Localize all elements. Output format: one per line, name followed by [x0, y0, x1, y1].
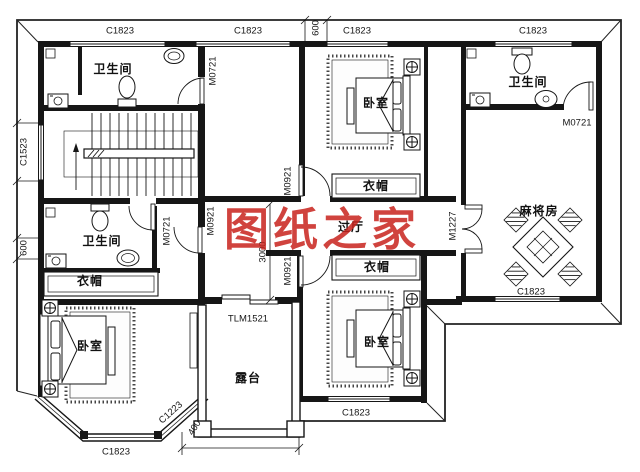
label-room-cloak-1: 衣帽 — [77, 275, 103, 287]
column-mark — [46, 49, 55, 58]
window-c1823-mahjong — [495, 297, 560, 302]
toilet-icon — [512, 48, 532, 74]
label-window-c1823-top-2: C1823 — [234, 26, 262, 36]
window-c1823-top-1 — [70, 42, 165, 47]
label-door-tlm1521: TLM1521 — [228, 314, 268, 324]
label-dim-600-top: 600 — [311, 20, 321, 36]
door-m0721-bath3 — [563, 82, 593, 110]
label-door-m0921-suite1: M0921 — [206, 206, 216, 235]
column-mark — [467, 49, 476, 58]
washing-machine-icon — [48, 94, 68, 108]
nightstand-lamp-icon — [404, 291, 420, 307]
washing-machine-icon — [46, 254, 66, 268]
label-door-m0721-bath3: M0721 — [562, 118, 591, 128]
label-room-bathroom-3: 卫生间 — [508, 76, 547, 88]
door-m0721-bath1 — [178, 78, 204, 104]
label-room-bedroom-2: 卧室 — [363, 97, 389, 109]
label-door-m0921-bedroom3: M0921 — [283, 256, 293, 285]
nightstand-lamp-icon — [404, 134, 420, 150]
door-m0721-bath2 — [129, 204, 155, 230]
label-room-terrace: 露台 — [235, 372, 261, 384]
label-room-bedroom-1: 卧室 — [77, 340, 103, 352]
label-door-m0721-bath1: M0721 — [208, 56, 218, 85]
label-window-c1823-mahjong: C1823 — [517, 287, 545, 297]
nightstand-lamp-icon — [404, 370, 420, 386]
mahjong-table-icon — [504, 208, 582, 286]
window-c1823-top-2 — [196, 42, 290, 47]
label-room-cloak-3: 衣帽 — [364, 261, 390, 273]
label-room-bedroom-3: 卧室 — [364, 336, 390, 348]
column-mark — [46, 208, 55, 217]
washing-machine-icon — [470, 93, 490, 107]
label-window-c1823-bay: C1823 — [102, 447, 130, 457]
sink-icon — [117, 250, 139, 266]
label-door-m1227: M1227 — [448, 211, 458, 240]
label-dim-600-left: 600 — [19, 240, 29, 256]
stairs-icon — [64, 113, 198, 196]
window-c1823-top-4 — [495, 42, 572, 47]
toilet-icon — [91, 204, 109, 231]
nightstand-lamp-icon — [42, 381, 58, 397]
window-c1823-bedroom3 — [328, 397, 390, 402]
door-m0921-bedroom3 — [299, 256, 330, 287]
label-door-m0921-bedroom2: M0921 — [283, 166, 293, 195]
window-c1523-left — [39, 125, 44, 180]
sink-icon — [164, 49, 184, 64]
label-room-mahjong: 麻将房 — [519, 205, 558, 217]
label-window-c1823-top-1: C1823 — [106, 26, 134, 36]
label-room-cloak-2: 衣帽 — [363, 180, 389, 192]
label-room-bathroom-1: 卫生间 — [93, 63, 132, 75]
chair-icon — [504, 262, 528, 286]
sink-icon — [535, 91, 557, 108]
label-room-bathroom-2: 卫生间 — [82, 235, 121, 247]
nightstand-lamp-icon — [42, 300, 58, 316]
floor-plan-canvas: C1823 C1823 C1823 C1823 600 C1523 600 M0… — [0, 0, 640, 472]
label-window-c1823-top-4: C1823 — [519, 26, 547, 36]
watermark: 图纸之家 — [224, 208, 420, 253]
door-m1227-mahjong — [462, 205, 482, 253]
label-door-m0721-bath2: M0721 — [162, 216, 172, 245]
window-c1823-top-3 — [327, 42, 388, 47]
label-window-c1823-bedroom3: C1823 — [342, 408, 370, 418]
nightstand-lamp-icon — [404, 59, 420, 75]
label-window-c1523: C1523 — [19, 138, 29, 166]
chair-icon — [558, 208, 582, 232]
door-m0921-suite1 — [174, 227, 202, 253]
toilet-icon — [118, 76, 136, 107]
label-window-c1823-top-3: C1823 — [343, 26, 371, 36]
chair-icon — [558, 262, 582, 286]
